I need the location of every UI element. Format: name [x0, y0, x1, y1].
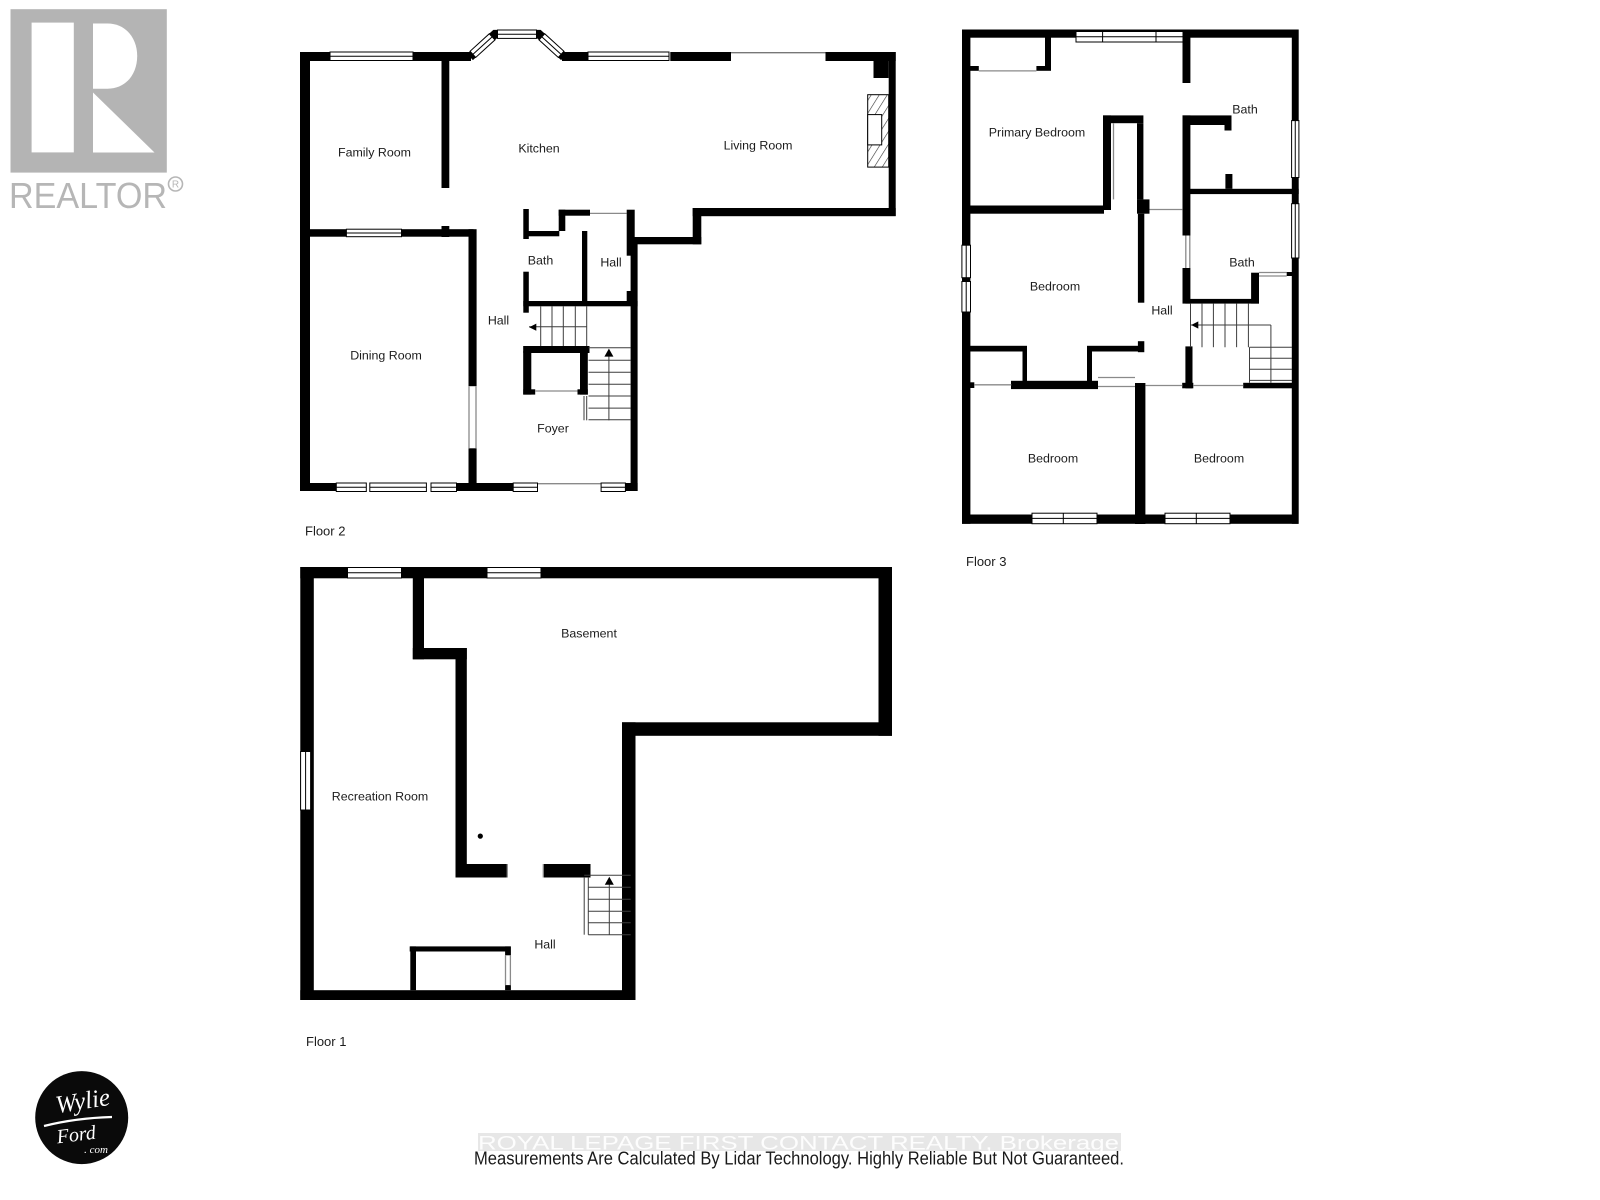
svg-text:Primary Bedroom: Primary Bedroom	[989, 125, 1085, 139]
svg-text:Kitchen: Kitchen	[518, 141, 559, 155]
svg-text:Basement: Basement	[561, 626, 617, 640]
svg-text:Measurements Are Calculated By: Measurements Are Calculated By Lidar Tec…	[474, 1149, 1124, 1169]
svg-text:Bath: Bath	[1232, 102, 1258, 116]
svg-text:Bath: Bath	[528, 253, 554, 267]
svg-text:Hall: Hall	[1151, 303, 1172, 317]
svg-text:Bedroom: Bedroom	[1030, 279, 1080, 293]
svg-text:Hall: Hall	[488, 313, 509, 327]
svg-text:Bath: Bath	[1229, 255, 1255, 269]
svg-text:Family Room: Family Room	[338, 145, 411, 159]
svg-text:R: R	[172, 180, 179, 191]
svg-text:Hall: Hall	[534, 937, 555, 951]
svg-text:Hall: Hall	[600, 255, 621, 269]
svg-text:REALTOR: REALTOR	[9, 175, 167, 216]
svg-text:Bedroom: Bedroom	[1194, 451, 1244, 465]
svg-text:Floor 1: Floor 1	[306, 1034, 346, 1049]
svg-text:Recreation Room: Recreation Room	[332, 789, 428, 803]
svg-text:Bedroom: Bedroom	[1028, 451, 1078, 465]
svg-text:Living Room: Living Room	[724, 138, 793, 152]
svg-text:. com: . com	[84, 1144, 108, 1156]
svg-text:Foyer: Foyer	[537, 421, 569, 435]
svg-text:Floor 3: Floor 3	[966, 554, 1006, 569]
svg-text:Dining Room: Dining Room	[350, 348, 422, 362]
svg-text:Floor 2: Floor 2	[305, 524, 345, 539]
